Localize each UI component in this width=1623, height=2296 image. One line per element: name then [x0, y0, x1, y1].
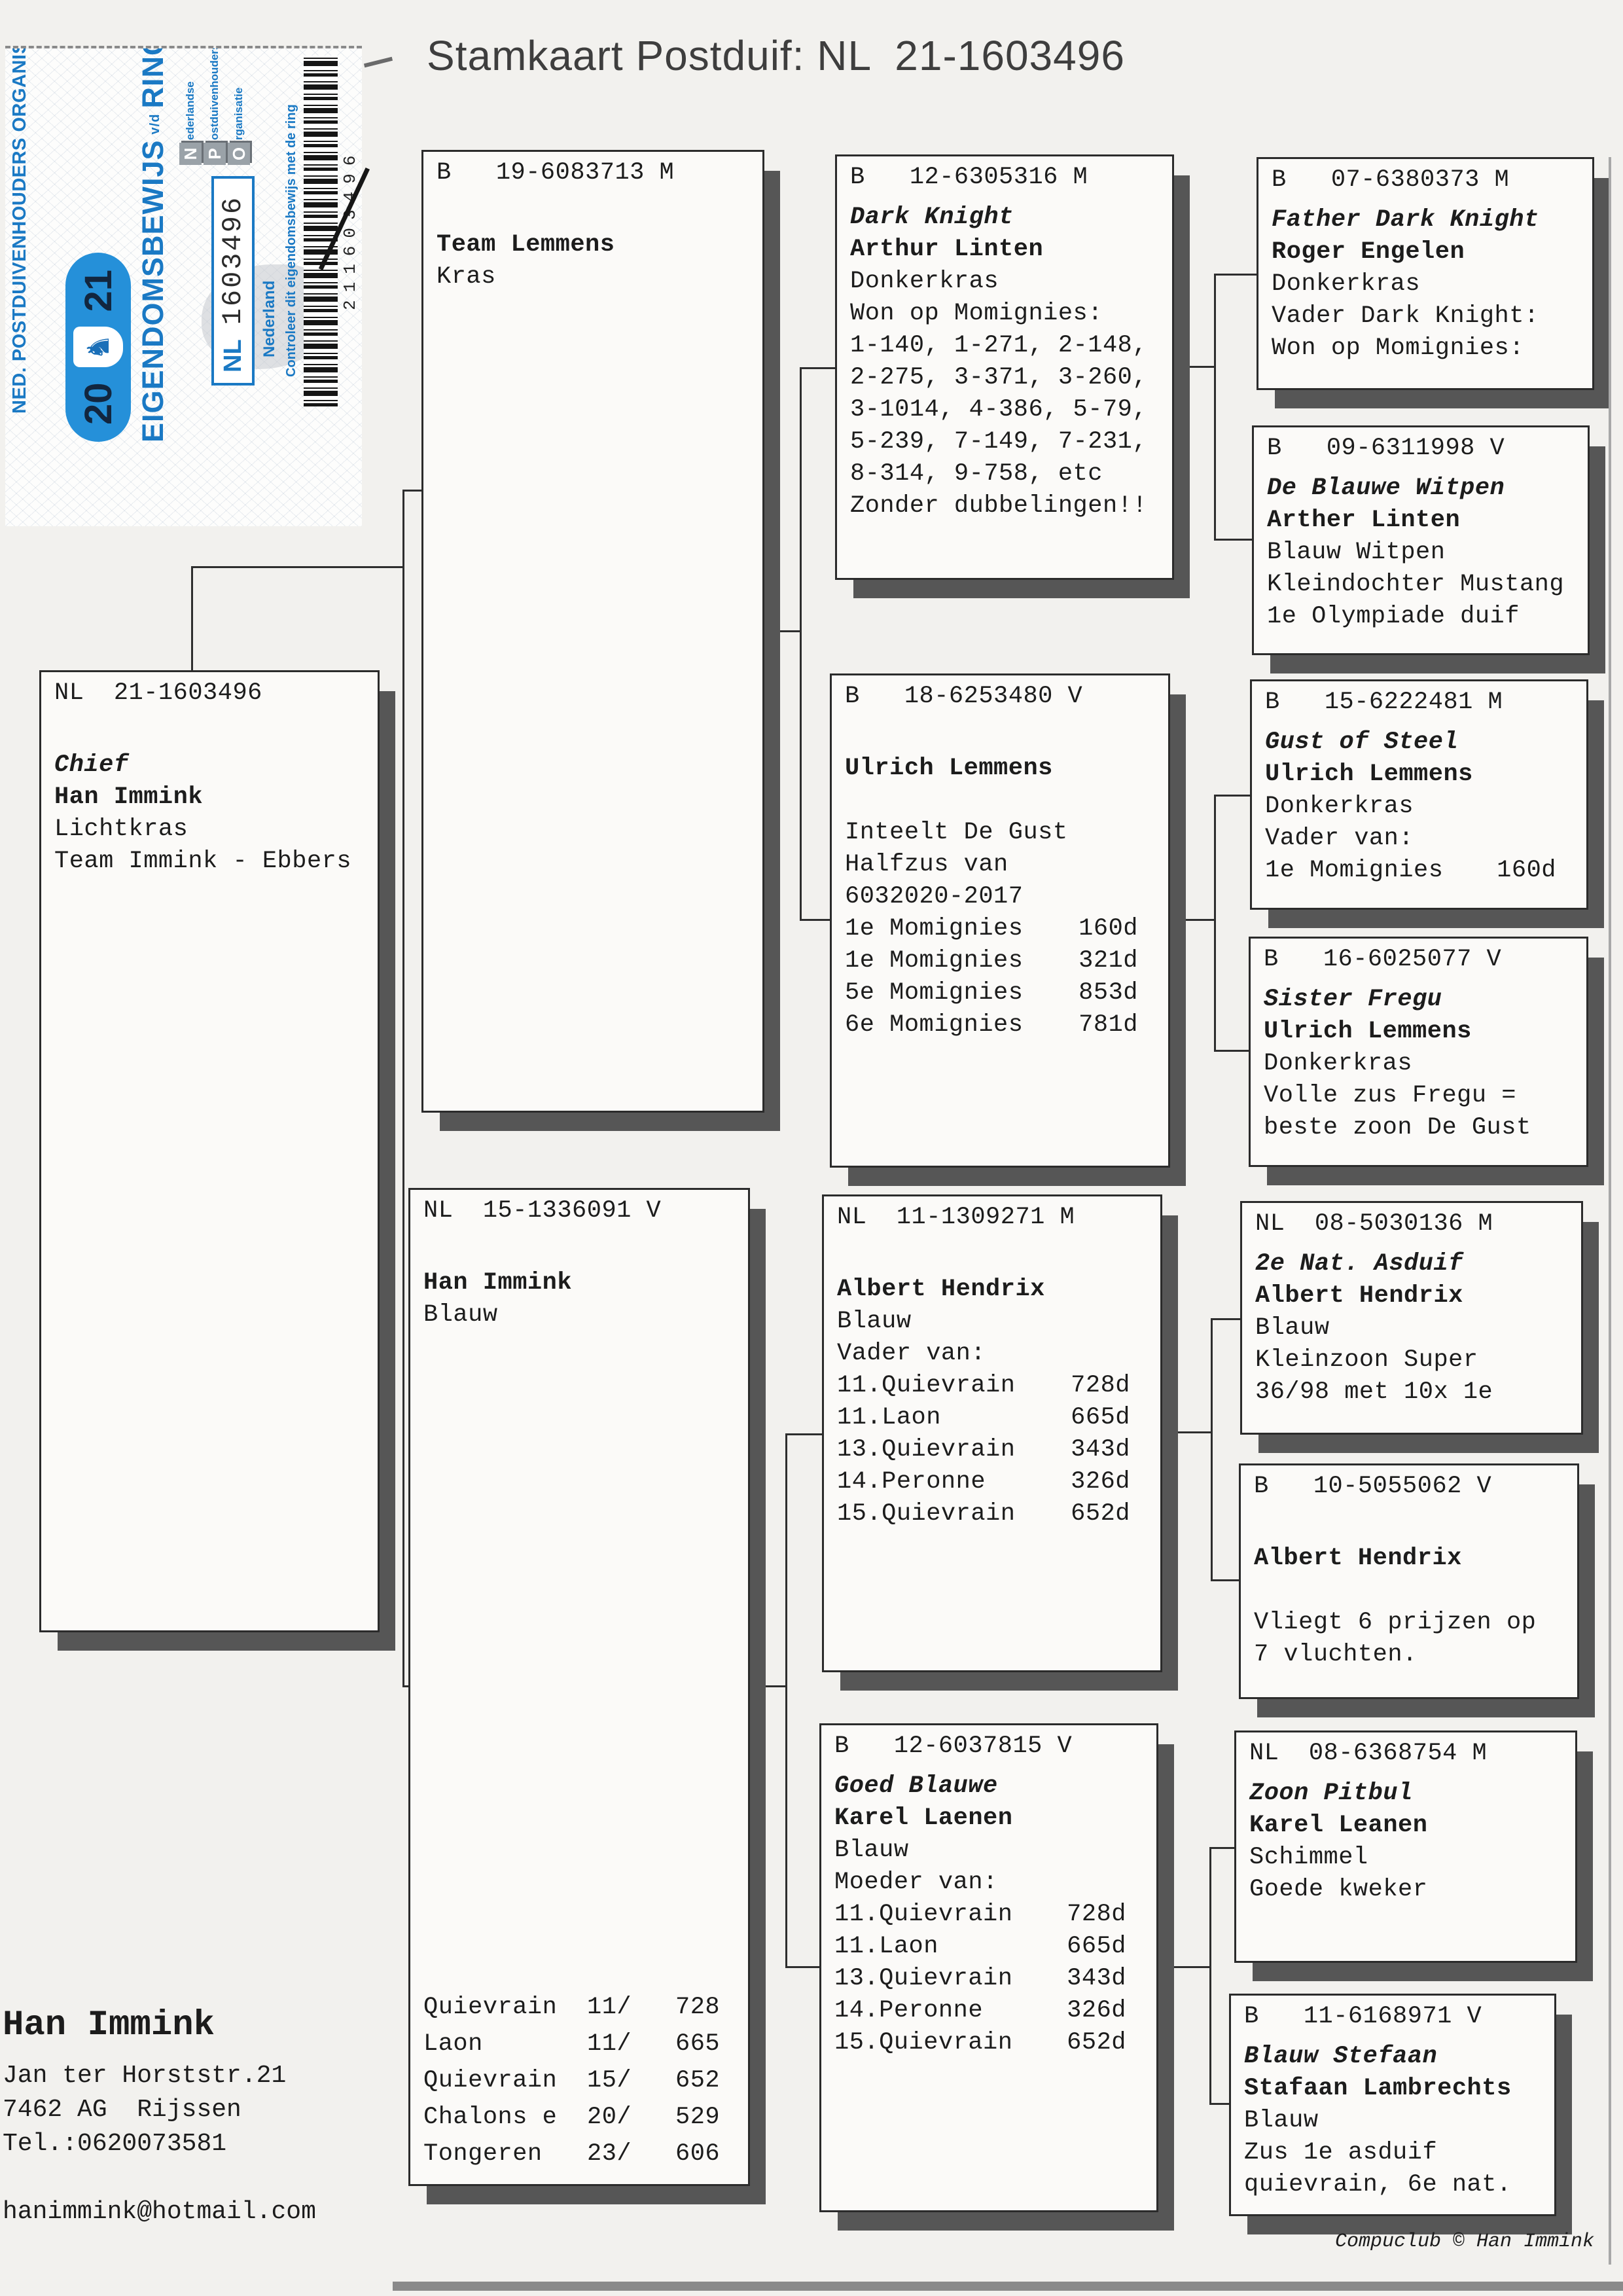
race-result-line: 14.Peronne326d: [837, 1466, 1147, 1498]
race-value: 160d: [1079, 913, 1138, 945]
pedigree-connector-line: [1170, 919, 1216, 921]
pedigree-text-line: Blauw: [1255, 1312, 1568, 1344]
pedigree-box-mm-grandmother: B 12-6037815 VGoed BlauweKarel LaenenBla…: [819, 1723, 1158, 2212]
scan-edge-right: [1609, 157, 1611, 2265]
race-result-line: 1e Momignies160d: [1265, 855, 1573, 887]
pedigree-connector-line: [800, 367, 836, 369]
pedigree-text-line: Blauw Stefaan: [1244, 2041, 1541, 2073]
pedigree-text-line: 1-140, 1-271, 2-148,: [850, 330, 1159, 362]
race-name: 11.Quievrain: [834, 1899, 1012, 1931]
pedigree-connector-line: [191, 566, 193, 670]
pedigree-text-line: Karel Laenen: [834, 1803, 1143, 1835]
ring-id: B 07-6380373 M: [1272, 164, 1579, 196]
race-result-line: 11.Quievrain728d: [837, 1370, 1147, 1402]
race-results-cell: 652: [675, 2065, 735, 2102]
pedigree-text-line: Volle zus Fregu =: [1264, 1080, 1573, 1112]
pedigree-text-line: Donkerkras: [850, 266, 1159, 298]
pedigree-connector-line: [800, 919, 831, 921]
doc-title-main: EIGENDOMSBEWIJS: [136, 139, 169, 442]
pedigree-text-line: Blauw: [837, 1306, 1147, 1338]
pedigree-text-line: Donkerkras: [1264, 1048, 1573, 1080]
race-result-line: 14.Peronne326d: [834, 1995, 1143, 2027]
ring-number: 1603496: [217, 196, 249, 325]
race-name: 11.Laon: [834, 1931, 938, 1963]
owner-city: 7462 AG Rijssen: [3, 2096, 241, 2124]
race-results-cell: Quievrain: [423, 1992, 587, 2028]
pedigree-connector-line: [402, 490, 423, 492]
race-result-line: 13.Quievrain343d: [837, 1434, 1147, 1466]
race-value: 728d: [1071, 1370, 1130, 1402]
pedigree-text-line: Zus 1e asduif: [1244, 2137, 1541, 2169]
scan-edge-bottom: [393, 2282, 1623, 2291]
pedigree-text-line: [1254, 1575, 1564, 1607]
pedigree-text-line: 6032020-2017: [845, 881, 1155, 913]
pedigree-text-line: Donkerkras: [1272, 268, 1579, 300]
pedigree-connector-line: [1209, 1847, 1211, 2105]
race-result-line: 13.Quievrain343d: [834, 1963, 1143, 1995]
ownership-sticker: NED. POSTDUIVENHOUDERS ORGANISATIE 20 ♞ …: [5, 46, 362, 526]
race-value: 343d: [1071, 1434, 1130, 1466]
race-value: 665d: [1067, 1931, 1126, 1963]
ring-id: B 10-5055062 V: [1254, 1471, 1564, 1503]
race-name: 6e Momignies: [845, 1009, 1023, 1041]
race-results-cell: 665: [675, 2028, 735, 2065]
ring-id: B 11-6168971 V: [1244, 2001, 1541, 2033]
race-results-cell: 11/: [587, 1992, 675, 2028]
pedigree-text-line: 36/98 met 10x 1e: [1255, 1376, 1568, 1408]
race-results-cell: 606: [675, 2138, 735, 2175]
doc-title-small: v/d: [148, 109, 162, 140]
npo-row: Organisatie: [228, 46, 250, 165]
race-results-cell: 529: [675, 2102, 735, 2138]
scan-stray-mark: [364, 57, 393, 67]
race-result-line: 11.Quievrain728d: [834, 1899, 1143, 1931]
pedigree-text-line: Zonder dubbelingen!!: [850, 490, 1159, 522]
race-results-cell: 20/: [587, 2102, 675, 2138]
pedigree-connector-line: [785, 1966, 821, 1968]
pedigree-text-line: Vader van:: [1265, 823, 1573, 855]
pedigree-connector-line: [785, 1433, 787, 1968]
pedigree-text-line: Vliegt 6 prijzen op: [1254, 1607, 1564, 1639]
pedigree-connector-line: [1158, 1966, 1211, 1968]
pedigree-text-line: 3-1014, 4-386, 5-79,: [850, 394, 1159, 426]
barcode-number: 211603496: [340, 148, 360, 310]
pedigree-connector-line: [1214, 1050, 1249, 1052]
race-results-row: Quievrain15/652: [423, 2065, 735, 2102]
race-results-row: Laon11/665: [423, 2028, 735, 2065]
pedigree-text-line: Roger Engelen: [1272, 236, 1579, 268]
sticker-org-line: NED. POSTDUIVENHOUDERS ORGANISATIE: [9, 52, 31, 414]
pedigree-text-line: quievrain, 6e nat.: [1244, 2169, 1541, 2201]
pedigree-connector-line: [800, 367, 802, 921]
pedigree-text-line: [423, 1235, 735, 1267]
race-value: 160d: [1497, 855, 1556, 887]
race-name: 5e Momignies: [845, 977, 1023, 1009]
pedigree-connector-line: [1211, 1579, 1239, 1581]
pedigree-text-line: Goed Blauwe: [834, 1770, 1143, 1803]
race-result-line: 11.Laon665d: [834, 1931, 1143, 1963]
ring-id: B 16-6025077 V: [1264, 944, 1573, 976]
pedigree-text-line: Inteelt De Gust: [845, 817, 1155, 849]
pedigree-box-ggparent-6: B 10-5055062 V Albert Hendrix Vliegt 6 p…: [1239, 1463, 1579, 1699]
ring-id: B 12-6037815 V: [834, 1731, 1143, 1763]
ring-id: B 12-6305316 M: [850, 162, 1159, 194]
ring-id: B 19-6083713 M: [437, 157, 749, 189]
pedigree-connector-line: [1214, 274, 1216, 541]
pedigree-text-line: Team Immink - Ebbers: [54, 846, 365, 878]
pedigree-text-line: [54, 717, 365, 749]
race-result-line: 15.Quievrain652d: [837, 1498, 1147, 1530]
npo-letter: N: [179, 143, 202, 165]
ring-id: NL 21-1603496: [54, 677, 365, 709]
race-name: 11.Quievrain: [837, 1370, 1015, 1402]
ring-number-box: NL 1603496: [211, 176, 255, 386]
pedigree-text-line: Father Dark Knight: [1272, 204, 1579, 236]
year-left: 20: [77, 382, 120, 425]
pedigree-text-line: Schimmel: [1249, 1842, 1562, 1874]
race-value: 665d: [1071, 1402, 1130, 1434]
pedigree-box-fm-grandmother: B 18-6253480 V Ulrich Lemmens Inteelt De…: [830, 673, 1170, 1168]
pedigree-connector-line: [1214, 274, 1257, 276]
npo-word: rganisatie: [232, 88, 245, 140]
pedigree-text-line: Arther Linten: [1267, 505, 1575, 537]
pedigree-box-ggparent-5: NL 08-5030136 M2e Nat. AsduifAlbert Hend…: [1240, 1201, 1583, 1435]
npo-word: ederlandse: [184, 81, 197, 140]
pedigree-text-line: Chief: [54, 749, 365, 781]
pedigree-connector-line: [1209, 2103, 1229, 2105]
pedigree-text-line: Blauw Witpen: [1267, 537, 1575, 569]
race-name: 13.Quievrain: [837, 1434, 1015, 1466]
race-name: 11.Laon: [837, 1402, 941, 1434]
race-name: 14.Peronne: [834, 1995, 983, 2027]
pedigree-box-mf-grandfather: NL 11-1309271 M Albert HendrixBlauwVader…: [822, 1194, 1162, 1672]
ring-id: B 18-6253480 V: [845, 681, 1155, 713]
pedigree-box-ggparent-4: B 16-6025077 VSister FreguUlrich Lemmens…: [1249, 937, 1588, 1167]
pedigree-text-line: Kleindochter Mustang: [1267, 569, 1575, 601]
pedigree-connector-line: [1211, 1318, 1240, 1320]
race-value: 321d: [1079, 945, 1138, 977]
ring-id: B 15-6222481 M: [1265, 687, 1573, 719]
pedigree-text-line: Albert Hendrix: [837, 1274, 1147, 1306]
sticker-doc-title: EIGENDOMSBEWIJSv/dRING: [136, 46, 170, 442]
pedigree-text-line: Won op Momignies:: [1272, 332, 1579, 365]
npo-letters-block: Nederlandse Postduivenhouders Organisati…: [179, 46, 252, 165]
doc-title-end: RING: [136, 46, 169, 109]
race-name: 13.Quievrain: [834, 1963, 1012, 1995]
race-value: 652d: [1071, 1498, 1130, 1530]
pedigree-connector-line: [1214, 539, 1252, 541]
pedigree-text-line: Zoon Pitbul: [1249, 1778, 1562, 1810]
sticker-content: NED. POSTDUIVENHOUDERS ORGANISATIE 20 ♞ …: [5, 48, 362, 526]
race-name: 1e Momignies: [845, 913, 1023, 945]
pedigree-text-line: Gust of Steel: [1265, 726, 1573, 759]
pedigree-box-ggparent-2: B 09-6311998 VDe Blauwe WitpenArther Lin…: [1252, 425, 1590, 655]
pedigree-text-line: Won op Momignies:: [850, 298, 1159, 330]
pedigree-text-line: Blauw: [1244, 2105, 1541, 2137]
race-results-cell: 23/: [587, 2138, 675, 2175]
ring-country: NL: [219, 339, 247, 372]
pedigree-box-mother: NL 15-1336091 V Han ImminkBlauwQuievrain…: [408, 1188, 750, 2186]
pedigree-text-line: Ulrich Lemmens: [845, 753, 1155, 785]
pedigree-connector-line: [1211, 1318, 1213, 1581]
race-name: 14.Peronne: [837, 1466, 986, 1498]
pedigree-text-line: 8-314, 9-758, etc: [850, 458, 1159, 490]
stamkaart-page: Stamkaart Postduif: NL 21-1603496 NED. P…: [0, 0, 1623, 2296]
sticker-check-line: Controleer dit eigendomsbewijs met de ri…: [284, 104, 299, 377]
pedigree-text-line: Albert Hendrix: [1254, 1543, 1564, 1575]
race-results-cell: Chalons e: [423, 2102, 587, 2138]
race-result-line: 15.Quievrain652d: [834, 2027, 1143, 2059]
race-result-line: 1e Momignies321d: [845, 945, 1155, 977]
pedigree-text-line: Ulrich Lemmens: [1264, 1016, 1573, 1048]
race-results-cell: Tongeren: [423, 2138, 587, 2175]
pedigree-text-line: Donkerkras: [1265, 791, 1573, 823]
pedigree-text-line: [837, 1242, 1147, 1274]
owner-street: Jan ter Horststr.21: [3, 2062, 286, 2090]
race-name: 15.Quievrain: [837, 1498, 1015, 1530]
pedigree-text-line: [845, 721, 1155, 753]
ring-id: NL 08-5030136 M: [1255, 1208, 1568, 1240]
pedigree-text-line: Arthur Linten: [850, 234, 1159, 266]
pedigree-text-line: Goede kweker: [1249, 1874, 1562, 1906]
race-value: 781d: [1079, 1009, 1138, 1041]
lion-glyph: ♞: [83, 334, 113, 361]
pedigree-text-line: Blauw: [423, 1299, 735, 1331]
ring-id: NL 11-1309271 M: [837, 1202, 1147, 1234]
pedigree-text-line: [845, 785, 1155, 817]
race-results-table: Quievrain11/728Laon11/665Quievrain15/652…: [423, 1992, 735, 2175]
race-result-line: 6e Momignies781d: [845, 1009, 1155, 1041]
race-results-cell: Laon: [423, 2028, 587, 2065]
pedigree-text-line: Halfzus van: [845, 849, 1155, 881]
race-name: 15.Quievrain: [834, 2027, 1012, 2059]
race-results-cell: 728: [675, 1992, 735, 2028]
pedigree-text-line: Kras: [437, 261, 749, 293]
lion-crest-icon: ♞: [73, 327, 123, 368]
race-result-line: 1e Momignies160d: [845, 913, 1155, 945]
pedigree-connector-line: [1214, 795, 1250, 797]
npo-letter: O: [228, 143, 250, 165]
pedigree-connector-line: [750, 1685, 787, 1687]
pedigree-text-line: De Blauwe Witpen: [1267, 473, 1575, 505]
pedigree-text-line: beste zoon De Gust: [1264, 1112, 1573, 1144]
pedigree-text-line: Ulrich Lemmens: [1265, 759, 1573, 791]
barcode: [304, 56, 338, 406]
race-results-row: Chalons e20/529: [423, 2102, 735, 2138]
pedigree-box-ff-grandfather: B 12-6305316 MDark KnightArthur LintenDo…: [835, 154, 1174, 580]
pedigree-text-line: [1254, 1511, 1564, 1543]
pedigree-text-line: Han Immink: [54, 781, 365, 814]
country-label: Nederland: [260, 281, 279, 357]
pedigree-text-line: Team Lemmens: [437, 229, 749, 261]
npo-row: Nederlandse: [179, 46, 202, 165]
race-name: 1e Momignies: [845, 945, 1023, 977]
race-value: 343d: [1067, 1963, 1126, 1995]
race-results-row: Quievrain11/728: [423, 1992, 735, 2028]
pedigree-text-line: [437, 197, 749, 229]
pedigree-text-line: Sister Fregu: [1264, 984, 1573, 1016]
pedigree-text-line: Lichtkras: [54, 814, 365, 846]
pedigree-box-ggparent-1: B 07-6380373 MFather Dark KnightRoger En…: [1257, 157, 1594, 390]
ring-id: NL 08-6368754 M: [1249, 1738, 1562, 1770]
pedigree-box-subject: NL 21-1603496 ChiefHan ImminkLichtkrasTe…: [39, 670, 380, 1632]
pedigree-connector-line: [402, 490, 404, 1687]
pedigree-text-line: Dark Knight: [850, 202, 1159, 234]
race-results-cell: 11/: [587, 2028, 675, 2065]
pedigree-text-line: Blauw: [834, 1835, 1143, 1867]
pedigree-connector-line: [191, 566, 404, 568]
pedigree-text-line: Han Immink: [423, 1267, 735, 1299]
race-results-cell: Quievrain: [423, 2065, 587, 2102]
pedigree-text-line: 2-275, 3-371, 3-260,: [850, 362, 1159, 394]
pedigree-text-line: Vader van:: [837, 1338, 1147, 1370]
pedigree-connector-line: [1214, 795, 1216, 1052]
pedigree-connector-line: [785, 1433, 823, 1435]
pedigree-text-line: Vader Dark Knight:: [1272, 300, 1579, 332]
npo-word: ostduivenhouders: [208, 46, 221, 140]
race-value: 728d: [1067, 1899, 1126, 1931]
pedigree-connector-line: [1162, 1431, 1213, 1433]
year-right: 21: [77, 270, 120, 312]
pedigree-text-line: Kleinzoon Super: [1255, 1344, 1568, 1376]
race-value: 326d: [1071, 1466, 1130, 1498]
owner-email: hanimmink@hotmail.com: [3, 2198, 316, 2226]
pedigree-text-line: Stafaan Lambrechts: [1244, 2073, 1541, 2105]
npo-row: Postduivenhouders: [204, 46, 226, 165]
page-title: Stamkaart Postduif: NL 21-1603496: [427, 31, 1125, 80]
pedigree-text-line: 5-239, 7-149, 7-231,: [850, 426, 1159, 458]
year-pill: 20 ♞ 21: [65, 253, 131, 442]
race-value: 652d: [1067, 2027, 1126, 2059]
pedigree-text-line: Albert Hendrix: [1255, 1280, 1568, 1312]
pedigree-box-ggparent-7: NL 08-6368754 MZoon PitbulKarel LeanenSc…: [1234, 1731, 1577, 1963]
race-name: 1e Momignies: [1265, 855, 1443, 887]
pedigree-connector-line: [1174, 366, 1216, 368]
pedigree-text-line: Karel Leanen: [1249, 1810, 1562, 1842]
pedigree-text-line: 7 vluchten.: [1254, 1639, 1564, 1671]
pedigree-box-father: B 19-6083713 M Team LemmensKras: [421, 150, 764, 1113]
ring-id: NL 15-1336091 V: [423, 1195, 735, 1227]
race-results-cell: 15/: [587, 2065, 675, 2102]
software-credit: Compuclub © Han Immink: [1335, 2231, 1594, 2253]
race-value: 326d: [1067, 1995, 1126, 2027]
owner-phone: Tel.:0620073581: [3, 2130, 226, 2158]
pedigree-text-line: 1e Olympiade duif: [1267, 601, 1575, 633]
npo-letter: P: [204, 143, 226, 165]
pedigree-text-line: 2e Nat. Asduif: [1255, 1248, 1568, 1280]
pedigree-box-ggparent-3: B 15-6222481 MGust of SteelUlrich Lemmen…: [1250, 679, 1588, 910]
race-result-line: 11.Laon665d: [837, 1402, 1147, 1434]
race-value: 853d: [1079, 977, 1138, 1009]
race-results-row: Tongeren23/606: [423, 2138, 735, 2175]
pedigree-text-line: Moeder van:: [834, 1867, 1143, 1899]
pedigree-connector-line: [1209, 1847, 1234, 1849]
ring-id: B 09-6311998 V: [1267, 433, 1575, 465]
pedigree-box-ggparent-8: B 11-6168971 VBlauw StefaanStafaan Lambr…: [1229, 1994, 1556, 2216]
pedigree-connector-line: [764, 630, 802, 632]
owner-name: Han Immink: [3, 2005, 215, 2045]
race-result-line: 5e Momignies853d: [845, 977, 1155, 1009]
